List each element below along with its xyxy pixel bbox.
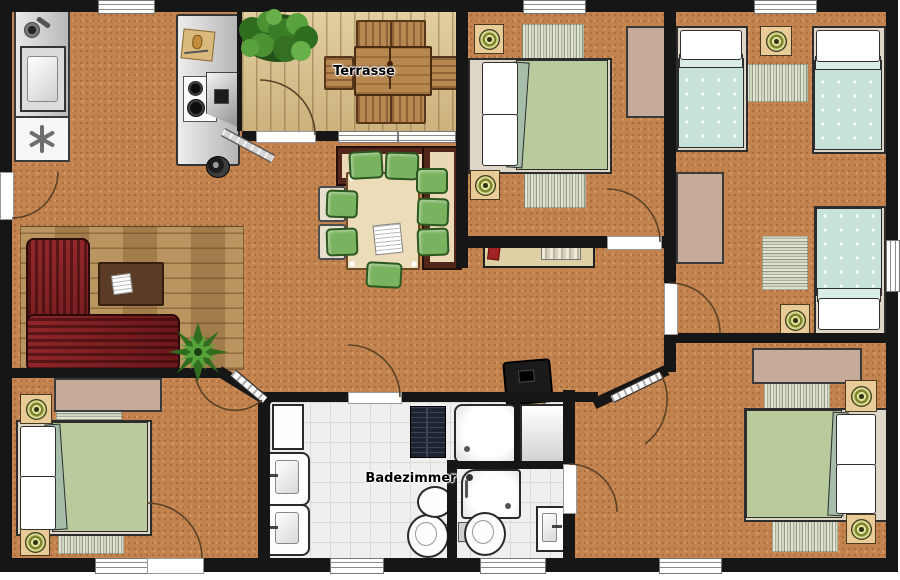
lamp-icon <box>26 399 47 420</box>
window <box>754 0 817 14</box>
nightstand <box>760 26 792 56</box>
bread-icon <box>192 34 203 49</box>
nightstand <box>20 528 50 556</box>
wall <box>258 392 270 558</box>
stove-door <box>518 369 535 382</box>
shower-tray <box>520 404 567 464</box>
lamp-icon <box>25 532 46 553</box>
door-opening-bedroom <box>607 236 662 250</box>
pillow <box>680 30 742 60</box>
nightstand <box>846 514 876 544</box>
window <box>480 558 546 574</box>
wall <box>237 12 242 131</box>
wall <box>514 402 520 462</box>
window <box>338 131 398 143</box>
bedside-rug <box>522 24 584 60</box>
shower-tray <box>454 404 518 464</box>
seat-cushion <box>365 261 402 289</box>
basin <box>275 512 299 544</box>
pillow <box>836 464 876 514</box>
burner-icon <box>187 99 205 117</box>
faucet-icon <box>552 525 562 528</box>
bedside-rug <box>746 64 808 102</box>
wall <box>664 333 886 343</box>
shower-with-handle <box>461 469 521 519</box>
door-opening-terrace <box>256 131 316 143</box>
drain-icon <box>505 503 511 509</box>
washbasin <box>266 504 310 556</box>
terrace-label: Terrasse <box>326 64 402 79</box>
floor-plan: Terrasse <box>0 0 900 580</box>
window <box>659 558 722 574</box>
window <box>398 131 456 143</box>
sink-basin <box>27 56 58 102</box>
terrace-chair <box>356 94 392 124</box>
seat-cushion <box>417 197 450 226</box>
bed-blanket-green <box>516 60 608 170</box>
bed-blanket-teal <box>814 60 882 150</box>
wardrobe <box>752 348 862 384</box>
wall <box>457 461 563 469</box>
sofa-section-horizontal <box>26 314 180 372</box>
seat-cushion <box>385 151 420 180</box>
lamp-icon <box>785 310 806 331</box>
pillow <box>818 298 880 330</box>
wall <box>664 12 676 283</box>
seat-cushion <box>348 150 383 180</box>
bedside-rug <box>524 172 586 208</box>
seat-cushion <box>417 227 450 256</box>
lamp-icon <box>475 175 496 196</box>
washbasin <box>266 452 310 506</box>
seat-cushion <box>326 227 359 256</box>
basin <box>275 460 299 494</box>
wall <box>270 392 598 402</box>
lamp-icon <box>766 31 787 52</box>
wall <box>0 0 12 572</box>
wall <box>456 12 468 268</box>
wall <box>468 236 607 248</box>
bathroom-cabinet <box>272 404 304 450</box>
wall <box>563 390 575 464</box>
door-opening-entry <box>0 172 14 220</box>
window <box>330 558 384 574</box>
knife-icon <box>184 50 208 54</box>
pillow <box>836 414 876 466</box>
nightstand <box>780 304 810 336</box>
dark-grid-mat <box>410 406 446 458</box>
faucet-icon <box>24 22 40 38</box>
wall <box>12 368 224 378</box>
nightstand <box>845 380 877 412</box>
toilet <box>464 512 506 556</box>
seat-cushion <box>326 189 359 218</box>
window <box>95 558 148 574</box>
paper-on-table <box>111 273 134 296</box>
door-opening-bathroom <box>348 392 402 404</box>
pillow <box>20 476 56 530</box>
door-opening-wc <box>563 464 577 514</box>
newspaper <box>373 223 404 256</box>
nightstand <box>20 394 52 424</box>
wardrobe <box>54 378 162 412</box>
pillow <box>20 426 56 478</box>
bathroom-label: Badezimmer <box>355 471 467 486</box>
nightstand <box>470 170 500 200</box>
drain-icon <box>464 446 470 452</box>
lamp-icon <box>479 29 500 50</box>
trash-bin-icon <box>206 156 230 178</box>
nightstand <box>474 24 504 54</box>
pillow <box>482 114 518 166</box>
window <box>523 0 586 14</box>
wardrobe <box>676 172 724 264</box>
toilet-seat <box>415 522 437 546</box>
hood-vent-icon <box>214 89 229 104</box>
toilet <box>407 514 449 558</box>
bed-blanket-teal <box>678 58 744 148</box>
terrace-chair <box>390 94 426 124</box>
pillow <box>482 62 518 116</box>
dining-table <box>346 172 420 270</box>
lamp-icon <box>851 386 872 407</box>
toilet-seat <box>472 520 494 544</box>
seat-cushion <box>416 168 448 194</box>
asterisk-icon <box>27 124 57 154</box>
window <box>886 240 900 292</box>
bedside-rug <box>762 236 808 290</box>
pillow <box>816 30 880 62</box>
door-opening-children-room <box>664 283 678 335</box>
door-opening-garden <box>147 558 204 574</box>
appliance-box <box>14 116 70 162</box>
lamp-icon <box>851 519 872 540</box>
wall <box>563 512 575 558</box>
bed-blanket-teal <box>816 208 882 296</box>
burner-icon <box>188 81 203 96</box>
cutting-board <box>181 28 216 61</box>
window <box>98 0 155 14</box>
small-washbasin <box>536 506 566 552</box>
